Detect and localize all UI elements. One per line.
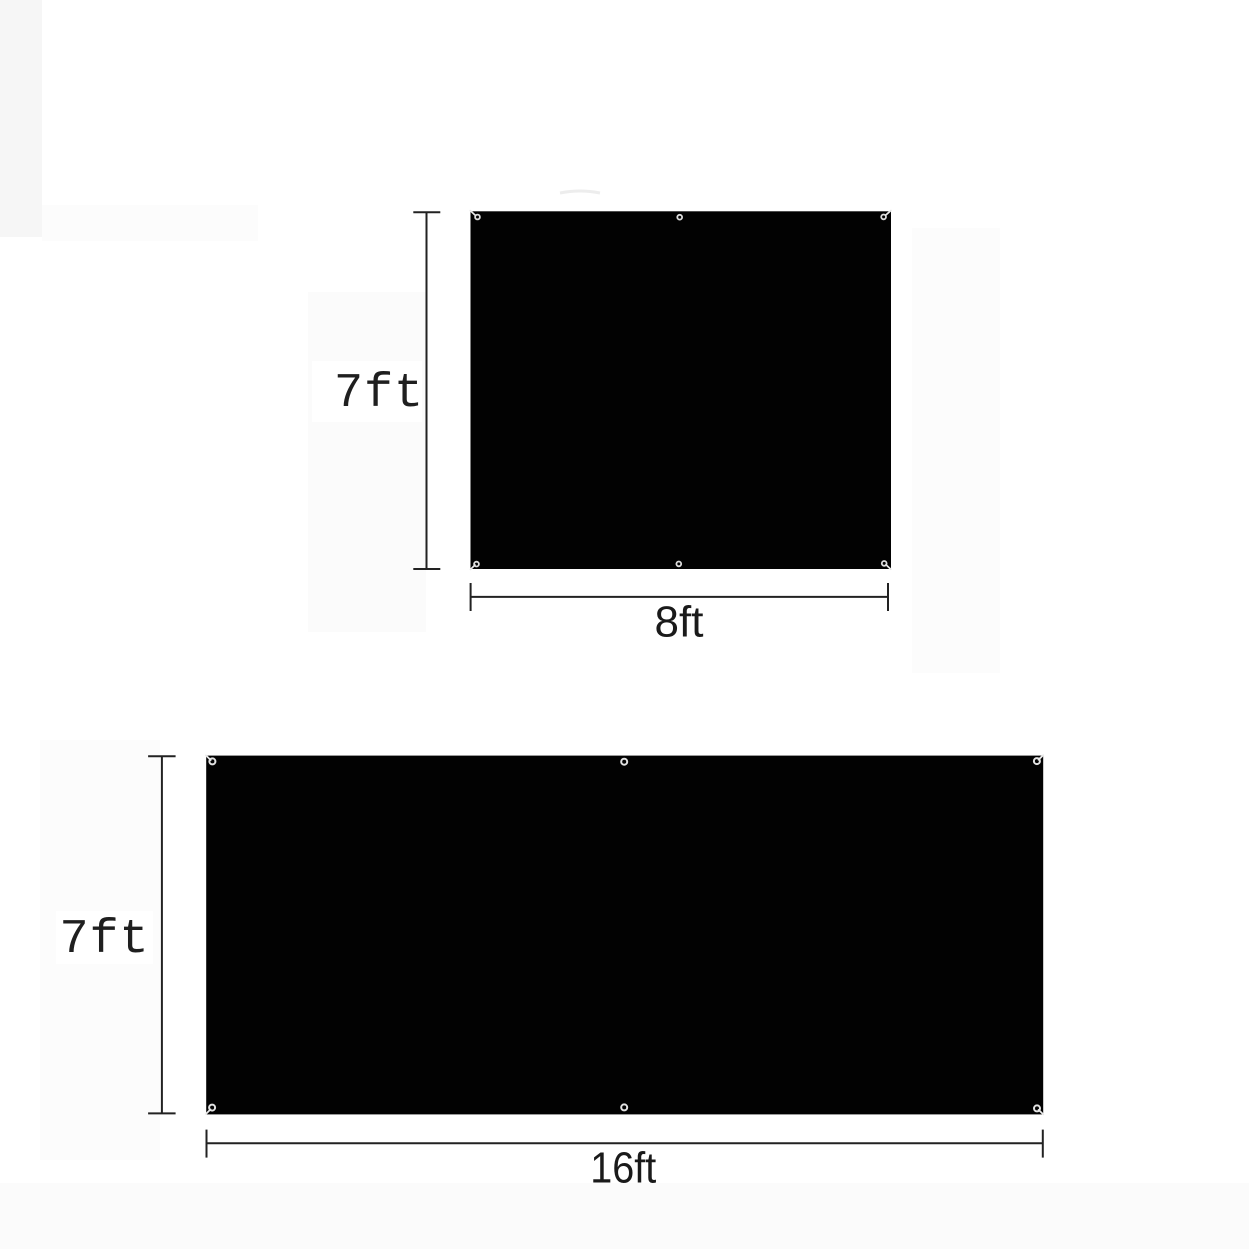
svg-text:7ft: 7ft: [334, 366, 424, 421]
svg-text:8ft: 8ft: [655, 597, 704, 646]
svg-text:16ft: 16ft: [590, 1144, 656, 1193]
svg-text:7ft: 7ft: [60, 912, 150, 967]
